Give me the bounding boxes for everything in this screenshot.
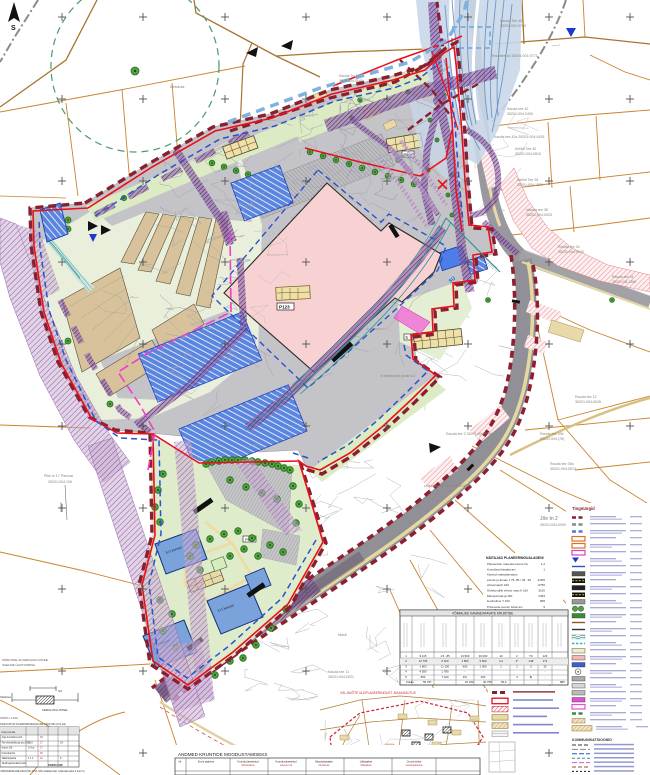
svg-text:-: - [545, 675, 546, 679]
svg-text:Rauda tee 2 35201:004:0264: Rauda tee 2 35201:004:0264 [446, 432, 493, 436]
svg-text:SÕIDU 1:100: SÕIDU 1:100 [0, 715, 18, 720]
svg-text:ehitusmaaC 160: ehitusmaaC 160 [487, 583, 509, 587]
svg-text:Kolerabamid: Kolerabamid [2, 752, 16, 755]
svg-text:35201:004:0613: 35201:004:0613 [550, 467, 576, 471]
svg-text:NÄITAJAD PLANEERINGUALADENI: NÄITAJAD PLANEERINGUALADENI [486, 556, 544, 560]
svg-text:Kauda tee 42: Kauda tee 42 [507, 107, 528, 111]
svg-text:Kauda tee 42a 35201:004:0435: Kauda tee 42a 35201:004:0435 [494, 135, 544, 139]
svg-text:KERGLIIKLUSTEE: KERGLIIKLUSTEE [42, 708, 68, 712]
svg-text:Kauda tee 11: Kauda tee 11 [328, 670, 349, 674]
svg-text:9 500: 9 500 [480, 659, 487, 663]
svg-text:35201:004:(78): 35201:004:(78) [540, 437, 564, 441]
svg-text:S: S [11, 25, 16, 32]
svg-text:Cr 100: Cr 100 [441, 664, 450, 668]
svg-text:Krunt aadress: Krunt aadress [198, 760, 215, 764]
svg-text:Tee-ehituskilba ja asu 10%: Tee-ehituskilba ja asu 10% [2, 741, 31, 744]
svg-text:Kellidi Tee 39: Kellidi Tee 39 [517, 178, 538, 182]
svg-text:-: - [483, 670, 484, 674]
svg-text:35201:004:0090: 35201:004:0090 [540, 523, 566, 527]
svg-text:1/ Kor: 1/ Kor [28, 747, 35, 750]
svg-text:VÕIMALIKE KAVANDATAVATE KRUNTI: VÕIMALIKE KAVANDATAVATE KRUNTIDE [452, 611, 513, 616]
svg-text:1/10: 1/10 [28, 741, 33, 744]
svg-text:8): 8) [530, 675, 533, 679]
svg-text:Kokku: Kokku [406, 680, 414, 684]
svg-text:-: - [465, 670, 466, 674]
svg-text:liidetakse: liidetakse [361, 763, 372, 767]
svg-text:suurus m2: suurus m2 [280, 763, 293, 767]
svg-text:3520:004:0046: 3520:004:0046 [339, 79, 363, 83]
svg-text:Kantad maksalamatust: Kantad maksalamatust [487, 573, 518, 577]
svg-text:Kasu kinnala: Kasu kinnala [2, 731, 16, 734]
svg-text:35201:004:106: 35201:004:106 [48, 480, 72, 484]
svg-text:vt seletuskiri punkt 4.2: vt seletuskiri punkt 4.2 [380, 374, 416, 378]
svg-text:Rauda tee 34: Rauda tee 34 [558, 245, 580, 249]
svg-text:35201:004:0810: 35201:004:0810 [515, 152, 541, 156]
svg-text:65,6: 65,6 [501, 680, 507, 684]
svg-text:800: 800 [421, 675, 426, 679]
svg-text:Mardi: Mardi [338, 633, 347, 637]
svg-text:200: 200 [481, 675, 486, 679]
svg-text:3,2: 3,2 [499, 659, 503, 663]
svg-text:Lõikatakse: Lõikatakse [360, 760, 373, 764]
svg-text:15 150: 15 150 [465, 680, 474, 684]
svg-text:Moodustatakse: Moodustatakse [315, 760, 333, 764]
svg-text:1 663: 1 663 [420, 664, 427, 668]
svg-text:GR002: GR002 [59, 502, 63, 512]
svg-text:650: 650 [463, 664, 468, 668]
svg-text:Ärija kontaktruumid: Ärija kontaktruumid [2, 736, 23, 739]
svg-text:P123: P123 [279, 305, 290, 310]
svg-text:1C): 1C) [463, 675, 468, 679]
svg-text:KOKKU 128: KOKKU 128 [48, 763, 63, 767]
svg-text:-: - [545, 670, 546, 674]
svg-text:Rauda tee 12: Rauda tee 12 [575, 395, 597, 399]
svg-text:Lemmiku 24 35201:004:0006: Lemmiku 24 35201:004:0006 [424, 484, 471, 488]
svg-text:Jõe tn 2: Jõe tn 2 [540, 516, 558, 522]
svg-text:1 800: 1 800 [462, 659, 469, 663]
svg-text:35201:004:0040: 35201:004:0040 [558, 250, 584, 254]
svg-text:Sõidutee: Sõidutee [0, 695, 11, 699]
svg-text:12 705: 12 705 [419, 659, 428, 663]
svg-text:KOMMUNIKATSIOONID: KOMMUNIKATSIOONID [572, 738, 612, 742]
svg-text:Kauda Tee 45: Kauda Tee 45 [500, 19, 522, 23]
svg-text:123: 123 [543, 654, 548, 658]
svg-text:SAELINE ÜHUTUSRISA: SAELINE ÜHUTUSRISA [2, 663, 35, 667]
svg-text:Järelhejarda laksurvide: Järelhejarda laksurvide [2, 762, 27, 765]
svg-text:35201:004:0025: 35201:004:0025 [526, 213, 552, 217]
svg-text:4 559: 4 559 [420, 670, 427, 674]
svg-text:1,1 4: 1,1 4 [28, 757, 34, 760]
svg-text:Aurlus 3/6: Aurlus 3/6 [2, 747, 13, 750]
svg-text:Rauda tee 35a: Rauda tee 35a [550, 462, 574, 466]
svg-text:40 755: 40 755 [483, 680, 492, 684]
svg-text:2454: 2454 [538, 594, 545, 598]
svg-text:Planeeritav maa-ala suurus ha: Planeeritav maa-ala suurus ha [487, 562, 528, 566]
svg-text:9 115: 9 115 [420, 654, 427, 658]
svg-text:35201:004:0021: 35201:004:0021 [328, 675, 354, 679]
svg-text:35201:004:1520: 35201:004:1520 [517, 183, 543, 187]
svg-text:Crundi sürke: Crundi sürke [407, 760, 422, 764]
svg-text:Nr: Nr [179, 760, 182, 764]
svg-text:895: 895 [540, 599, 545, 603]
svg-text:Pikk tn 17 Parnust: Pikk tn 17 Parnust [44, 474, 73, 478]
svg-text:Krundi planeeritud: Krundi planeeritud [275, 760, 297, 764]
svg-text:VÄRSKENDADE KRUUTE (CV1 M3 Lis: VÄRSKENDADE KRUUTE (CV1 M3 Lisatäiendat,… [0, 769, 85, 773]
svg-text:looduslime T 160: looduslime T 160 [487, 599, 510, 603]
svg-text:-6756: -6756 [537, 583, 545, 587]
svg-text:Rauda tee 33b: Rauda tee 33b [540, 432, 564, 436]
svg-text:Vanala tee 38: Vanala tee 38 [526, 208, 548, 212]
svg-text:7 100: 7 100 [442, 675, 449, 679]
svg-text:liikluspinnad ja 160: liikluspinnad ja 160 [487, 594, 513, 598]
svg-text:Tingmärgid: Tingmärgid [572, 506, 595, 511]
svg-text:Rauda tee 31: Rauda tee 31 [612, 275, 634, 279]
svg-text:Kauda Tn 46: Kauda Tn 46 [339, 74, 360, 78]
svg-text:13 500: 13 500 [461, 654, 470, 658]
svg-text:35201:08-1360: 35201:08-1360 [612, 280, 636, 284]
svg-text:35201:004:0490: 35201:004:0490 [507, 112, 533, 116]
svg-text:885: 885 [560, 680, 565, 684]
svg-text:Krundisad lisatala arv: Krundisad lisatala arv [487, 567, 516, 571]
svg-text:Raudtee 44 35201:001:0771: Raudtee 44 35201:001:0771 [492, 54, 538, 58]
svg-text:Krundi planeeritud: Krundi planeeritud [237, 760, 259, 764]
svg-text:1 5...85: 1 5...85 [440, 654, 450, 658]
svg-text:VÄLJAVÕTE ÜLDPLANEERINGUST. MA: VÄLJAVÕTE ÜLDPLANEERINGUST. MAAKASUTUS [340, 690, 416, 695]
svg-text:Pritsovete suurim lubat arv: Pritsovete suurim lubat arv [487, 605, 523, 609]
svg-text:estmis ja almas 7.75..85 / 45.: estmis ja almas 7.75..85 / 45...30 [487, 578, 531, 582]
svg-text:30 000: 30 000 [479, 654, 488, 658]
svg-text:10: 10 [499, 654, 503, 658]
svg-text:kinnistust: kinnistust [319, 763, 330, 767]
svg-text:1 055: 1 055 [480, 664, 487, 668]
svg-text:sihtotstarve: sihtotstarve [241, 763, 255, 767]
svg-text:1 780: 1 780 [442, 670, 449, 674]
svg-text:Metskula: Metskula [170, 85, 184, 89]
svg-text:Jääkülejaanla: Jääkülejaanla [2, 757, 17, 760]
svg-text:148: 148 [529, 659, 534, 663]
svg-text:35201:004:0045: 35201:004:0045 [575, 400, 601, 404]
svg-text:59 787: 59 787 [423, 680, 432, 684]
svg-text:3160: 3160 [538, 589, 545, 593]
svg-text:4/4: 4/4 [58, 689, 62, 693]
svg-text:TC: TC [529, 654, 533, 658]
svg-text:345/5: 345/5 [537, 578, 545, 582]
svg-text:1A: 1A [60, 741, 63, 744]
svg-text:6 100: 6 100 [442, 659, 449, 663]
svg-text:35201:001:0760: 35201:001:0760 [500, 24, 526, 28]
svg-text:32: 32 [543, 664, 547, 668]
svg-text:SÕIDUTEE JA KERGLIIKLUSTEE: SÕIDUTEE JA KERGLIIKLUSTEE [2, 657, 48, 662]
svg-text:1,2: 1,2 [541, 562, 546, 566]
svg-text:171: 171 [543, 659, 548, 663]
svg-text:KASUTATUD KAARDIMATERJALIDE KR: KASUTATUD KAARDIMATERJALIDE KRUUTE (CV1 … [0, 722, 66, 726]
svg-text:ANDMED KRUNTIDE MOODUSTAMISEKS: ANDMED KRUNTIDE MOODUSTAMISEKS [178, 752, 268, 757]
svg-text:Ühiskondlile ehitus maa /h 160: Ühiskondlile ehitus maa /h 160 [487, 589, 528, 593]
svg-text:Kellidi Tee 40: Kellidi Tee 40 [515, 147, 536, 151]
svg-text:moodustamine: moodustamine [405, 763, 423, 767]
